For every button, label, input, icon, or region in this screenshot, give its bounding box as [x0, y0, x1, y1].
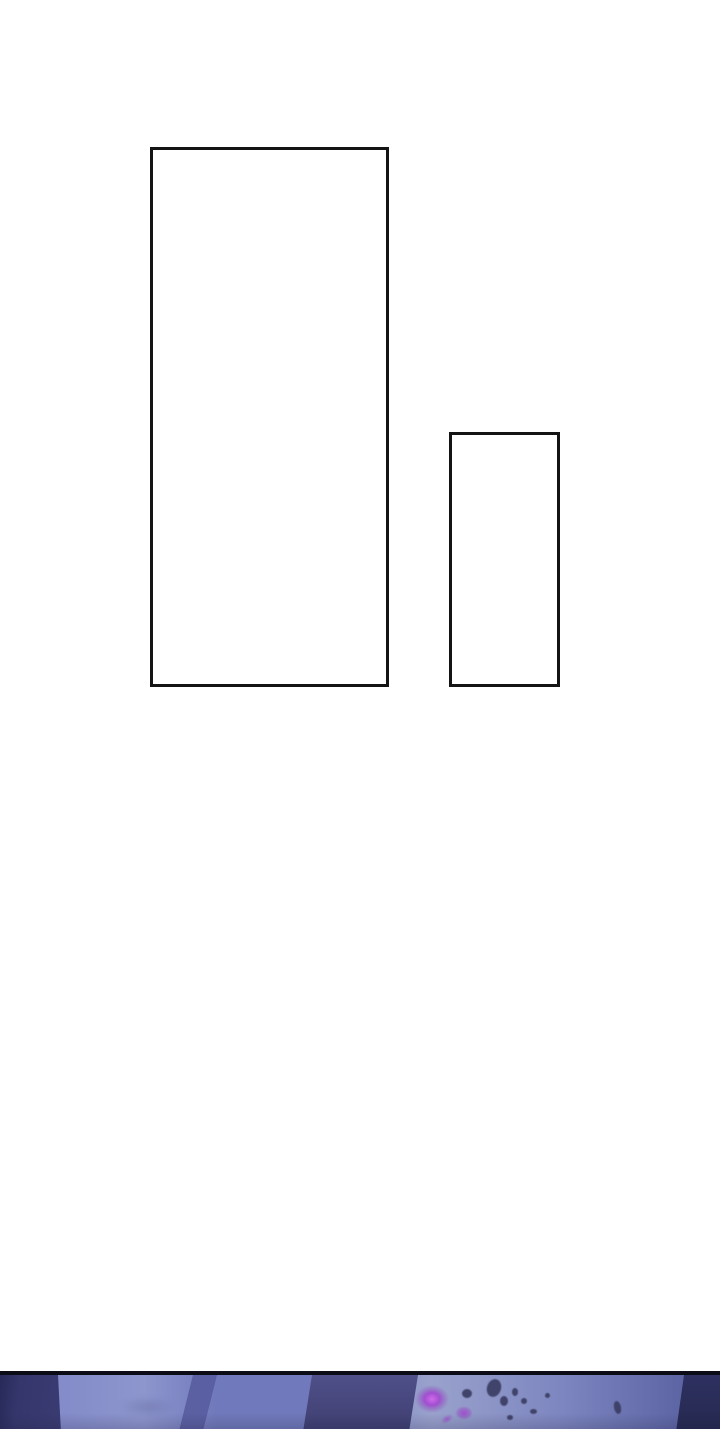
empty-panel-small	[449, 432, 560, 687]
debris-speck	[545, 1393, 550, 1398]
bottom-shading	[0, 1413, 720, 1429]
debris-speck	[462, 1389, 472, 1398]
next-panel-artwork	[0, 1371, 720, 1429]
panel-top-border-line	[0, 1371, 720, 1375]
debris-speck	[500, 1396, 508, 1406]
debris-speck	[521, 1398, 527, 1404]
comic-page	[0, 0, 720, 1429]
debris-speck	[512, 1388, 518, 1396]
empty-panel-large	[150, 147, 389, 687]
purple-glow-large	[415, 1385, 449, 1413]
